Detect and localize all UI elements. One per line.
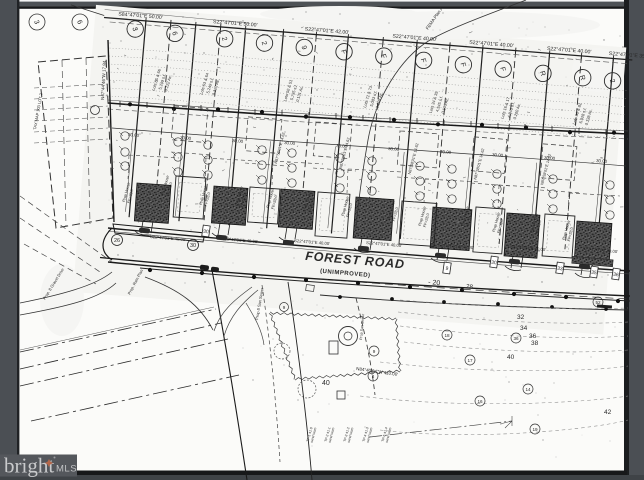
svg-text:28: 28 [466,284,474,291]
svg-text:36: 36 [513,336,519,341]
svg-text:MLS: MLS [56,464,77,475]
svg-text:30: 30 [491,260,498,267]
svg-text:30: 30 [190,243,196,249]
svg-text:35: 35 [591,270,598,277]
svg-text:30: 30 [203,229,210,236]
svg-text:17: 17 [467,358,473,363]
svg-text:30.00: 30.00 [388,146,400,152]
svg-text:14: 14 [525,387,531,392]
svg-text:33: 33 [557,266,564,273]
svg-text:52: 52 [595,300,601,305]
svg-text:- 20: - 20 [428,279,441,287]
svg-text:30.00: 30.00 [596,158,608,164]
svg-text:38: 38 [531,340,539,347]
svg-text:36: 36 [529,333,537,340]
svg-text:36: 36 [613,272,620,279]
svg-text:34: 34 [520,325,528,332]
svg-text:bright: bright [4,454,54,478]
svg-text:16: 16 [477,399,483,404]
svg-text:40: 40 [322,380,330,387]
svg-text:30.00: 30.00 [492,152,504,158]
svg-text:19: 19 [532,427,538,432]
svg-text:30.00: 30.00 [128,132,140,138]
svg-text:9: 9 [373,349,376,354]
svg-text:40: 40 [507,354,515,361]
svg-text:8: 8 [372,374,375,379]
svg-text:32: 32 [517,314,525,321]
svg-text:30.00: 30.00 [440,149,452,155]
svg-text:26: 26 [114,238,120,244]
svg-text:42: 42 [604,409,612,416]
svg-text:30.00: 30.00 [544,155,556,161]
svg-text:18: 18 [444,333,450,338]
svg-text:30.00: 30.00 [232,138,244,144]
svg-text:30.00: 30.00 [284,140,296,146]
svg-text:30.00: 30.00 [336,143,348,149]
